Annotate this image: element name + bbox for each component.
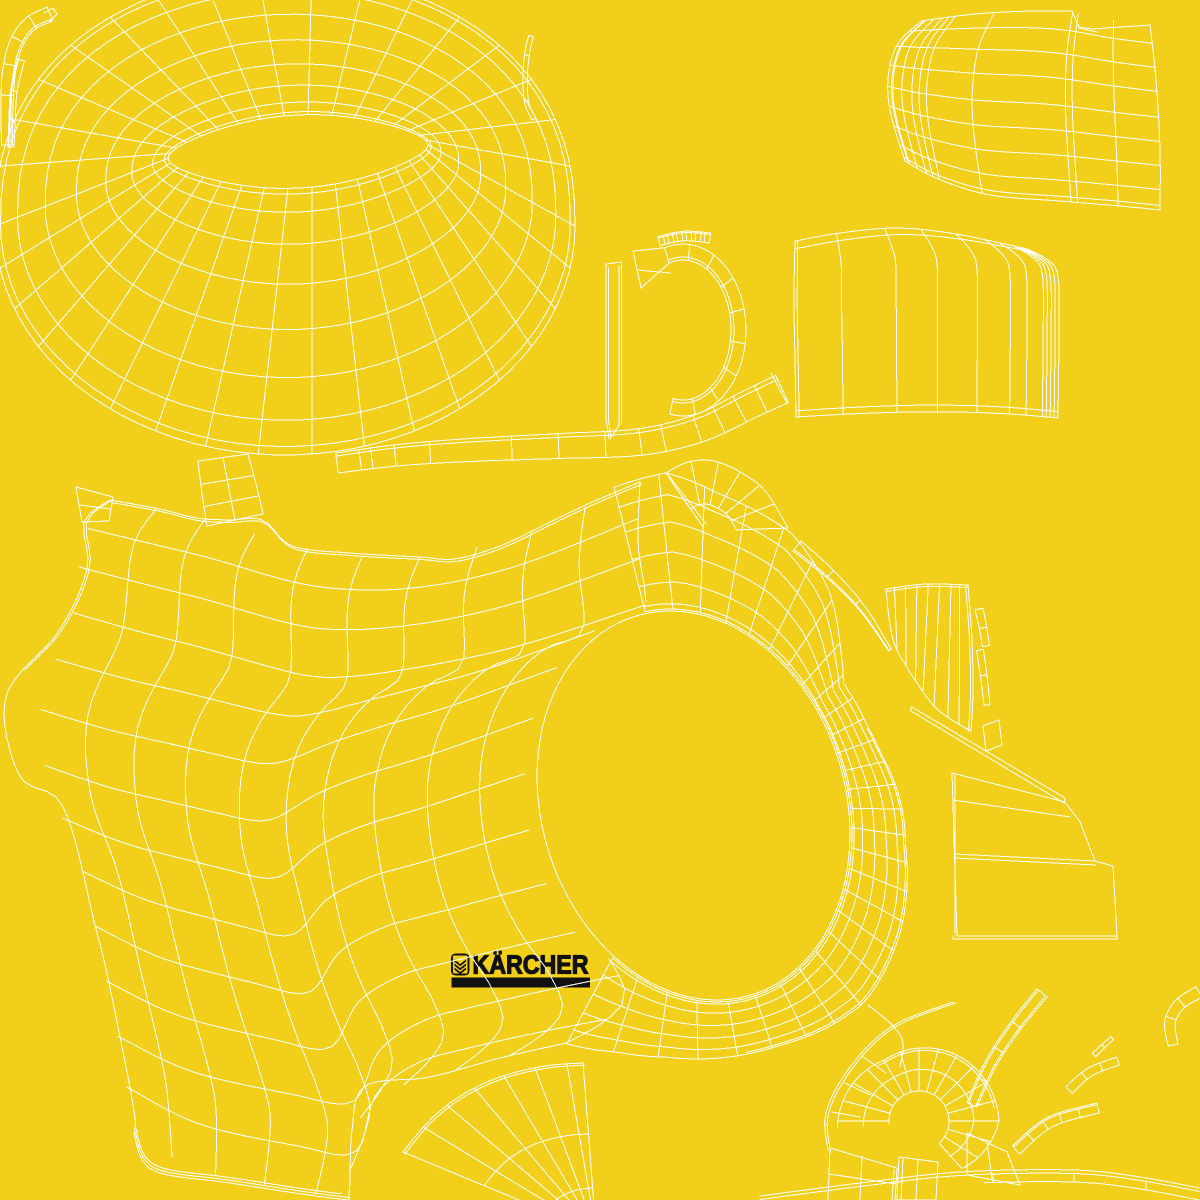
svg-text:KÄRCHER: KÄRCHER: [473, 952, 589, 980]
